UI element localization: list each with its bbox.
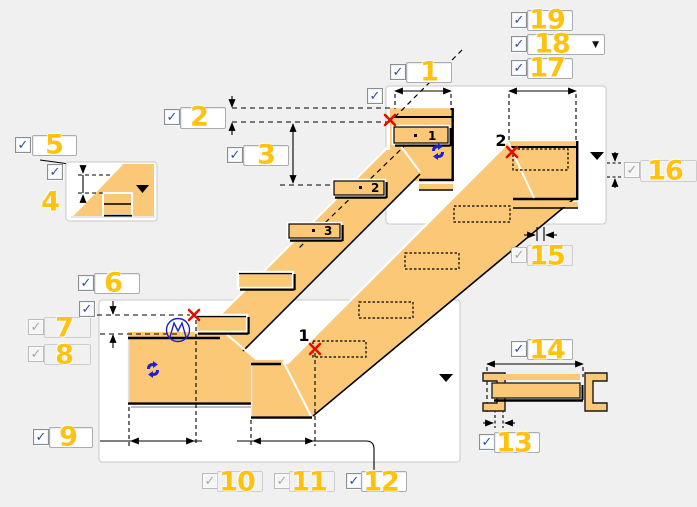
diagram-canvas: 1 2 3 bbox=[0, 0, 697, 507]
callout-6-checkbox[interactable]: ✓ bbox=[78, 275, 94, 291]
callout-3-checkbox[interactable]: ✓ bbox=[227, 147, 243, 163]
callout-11-label: 11 bbox=[291, 467, 327, 498]
callout-2-checkbox[interactable]: ✓ bbox=[164, 109, 180, 125]
callout-13-checkbox[interactable]: ✓ bbox=[479, 434, 495, 450]
svg-text:2: 2 bbox=[371, 181, 379, 195]
point-marker-1-label: 1 bbox=[298, 326, 309, 345]
callout-9-checkbox[interactable]: ✓ bbox=[33, 429, 49, 445]
svg-text:3: 3 bbox=[324, 224, 332, 238]
callout-3-label: 3 bbox=[257, 140, 275, 171]
callout-19-label: 19 bbox=[529, 5, 565, 36]
stair-settings-illustration: 1 2 3 bbox=[0, 0, 697, 507]
callout-4-label: 4 bbox=[41, 187, 59, 218]
callout-9-label: 9 bbox=[59, 422, 77, 453]
callout-19-checkbox[interactable]: ✓ bbox=[511, 12, 527, 28]
callout-18-checkbox[interactable]: ✓ bbox=[511, 36, 527, 52]
callout-12-checkbox[interactable]: ✓ bbox=[346, 473, 362, 489]
callout-14-label: 14 bbox=[529, 335, 565, 366]
point-marker-2-label: 2 bbox=[495, 131, 506, 150]
dropdown-arrow[interactable]: ▼ bbox=[592, 40, 599, 50]
aux-checkbox-bottom[interactable]: ✓ bbox=[79, 301, 95, 317]
callout-2-label: 2 bbox=[190, 102, 208, 133]
svg-text:1: 1 bbox=[428, 129, 436, 143]
callout-8-label: 8 bbox=[55, 340, 73, 371]
tread-box-3: 3 bbox=[288, 223, 343, 241]
tread-cross-section bbox=[483, 373, 607, 411]
callout-14-checkbox[interactable]: ✓ bbox=[511, 341, 527, 357]
tread-box-plain-1 bbox=[238, 272, 295, 290]
callout-1-label: 1 bbox=[420, 57, 438, 88]
tread-box-plain-2 bbox=[196, 315, 249, 334]
tread-box-2: 2 bbox=[333, 180, 387, 198]
callout-10-label: 10 bbox=[219, 467, 255, 498]
aux-checkbox-top[interactable]: ✓ bbox=[367, 88, 383, 104]
callout-17-checkbox[interactable]: ✓ bbox=[511, 60, 527, 76]
stair-type-preview-dropdown[interactable] bbox=[66, 162, 157, 221]
callout-4-checkbox[interactable]: ✓ bbox=[47, 164, 63, 180]
callout-15-label: 15 bbox=[529, 241, 565, 272]
callout-12-label: 12 bbox=[363, 467, 399, 498]
callout-5-checkbox[interactable]: ✓ bbox=[15, 137, 31, 153]
callout-13-label: 13 bbox=[496, 428, 532, 459]
callout-6-label: 6 bbox=[104, 268, 122, 299]
callout-16-checkbox[interactable]: ✓ bbox=[624, 162, 640, 178]
callout-5-label: 5 bbox=[45, 130, 63, 161]
callout-8-checkbox[interactable]: ✓ bbox=[28, 346, 44, 362]
callout-15-checkbox[interactable]: ✓ bbox=[511, 247, 527, 263]
callout-7-checkbox[interactable]: ✓ bbox=[28, 319, 44, 335]
callout-10-checkbox[interactable]: ✓ bbox=[202, 473, 218, 489]
callout-11-checkbox[interactable]: ✓ bbox=[274, 473, 290, 489]
callout-1-checkbox[interactable]: ✓ bbox=[390, 64, 406, 80]
tread-box-1: 1 bbox=[393, 126, 451, 146]
callout-16-label: 16 bbox=[647, 156, 683, 187]
